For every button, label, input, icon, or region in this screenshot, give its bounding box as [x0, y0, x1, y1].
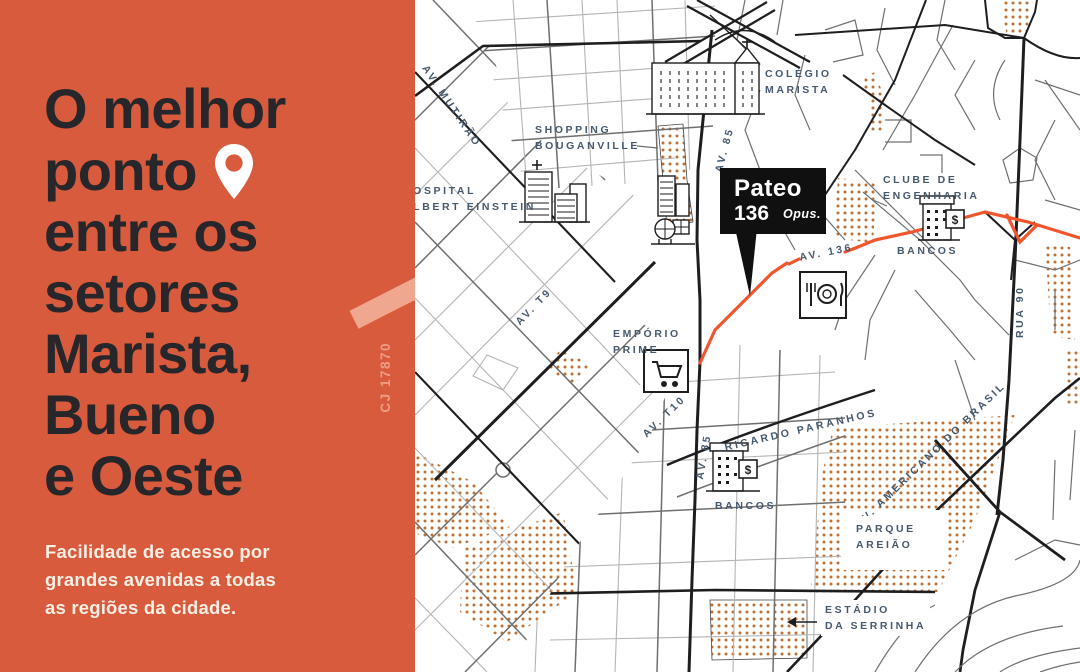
label-bancos-south: BANCOS	[715, 498, 776, 514]
callout-name: Pateo	[734, 176, 814, 202]
subtext-line: Facilidade de acesso por	[45, 538, 276, 566]
dollar-symbol: $	[745, 463, 752, 477]
label-parque-areiao: PARQUEAREIÃO	[847, 516, 925, 558]
headline: O melhor ponto entre os setores Marista,…	[44, 78, 286, 506]
page: O melhor ponto entre os setores Marista,…	[0, 0, 1080, 672]
label-rua-90: RUA 90	[1012, 285, 1028, 338]
label-hospital-albert-einstein: HOSPITALALBERT EINSTEIN	[415, 183, 536, 215]
label-colegio-marista: COLÉGIOMARISTA	[765, 66, 832, 98]
subtext-line: grandes avenidas a todas	[45, 566, 276, 594]
decorative-stripe	[349, 277, 415, 328]
subtext-line: as regiões da cidade.	[45, 594, 276, 622]
label-shopping-bouganville: SHOPPINGBOUGANVILLE	[535, 122, 640, 154]
pateo-136-callout: Pateo 136 Opus.	[720, 168, 826, 234]
callout-brand: Opus.	[783, 207, 821, 221]
headline-line: ponto	[44, 140, 197, 201]
headline-line: entre os	[44, 201, 286, 262]
headline-line: O melhor	[44, 78, 286, 139]
callout-number: 136	[734, 203, 769, 225]
label-clube-de-engenharia: CLUBE DEENGENHARIA	[883, 172, 980, 204]
callout-pointer	[735, 228, 757, 296]
colegio-marista-building-icon	[646, 38, 765, 114]
shopping-buildings-icon	[651, 176, 695, 244]
label-bancos-north: BANCOS	[897, 243, 958, 259]
left-marketing-panel: O melhor ponto entre os setores Marista,…	[0, 0, 415, 672]
headline-line: Marista,	[44, 323, 286, 384]
registry-code: CJ 17870	[378, 342, 393, 413]
label-estadio-da-serrinha: ESTÁDIODA SERRINHA	[821, 600, 930, 636]
estadio-zone	[710, 600, 807, 660]
dollar-symbol: $	[952, 213, 959, 227]
map-canvas: $	[415, 0, 1080, 672]
location-pin-icon	[213, 143, 255, 201]
headline-line: setores	[44, 262, 286, 323]
restaurant-icon	[800, 272, 846, 318]
map-area: $	[415, 0, 1080, 672]
headline-line: Bueno	[44, 384, 286, 445]
label-emporio-prime: EMPÓRIOPRIME	[613, 326, 681, 358]
headline-line: e Oeste	[44, 445, 286, 506]
subtext: Facilidade de acesso por grandes avenida…	[45, 538, 276, 622]
